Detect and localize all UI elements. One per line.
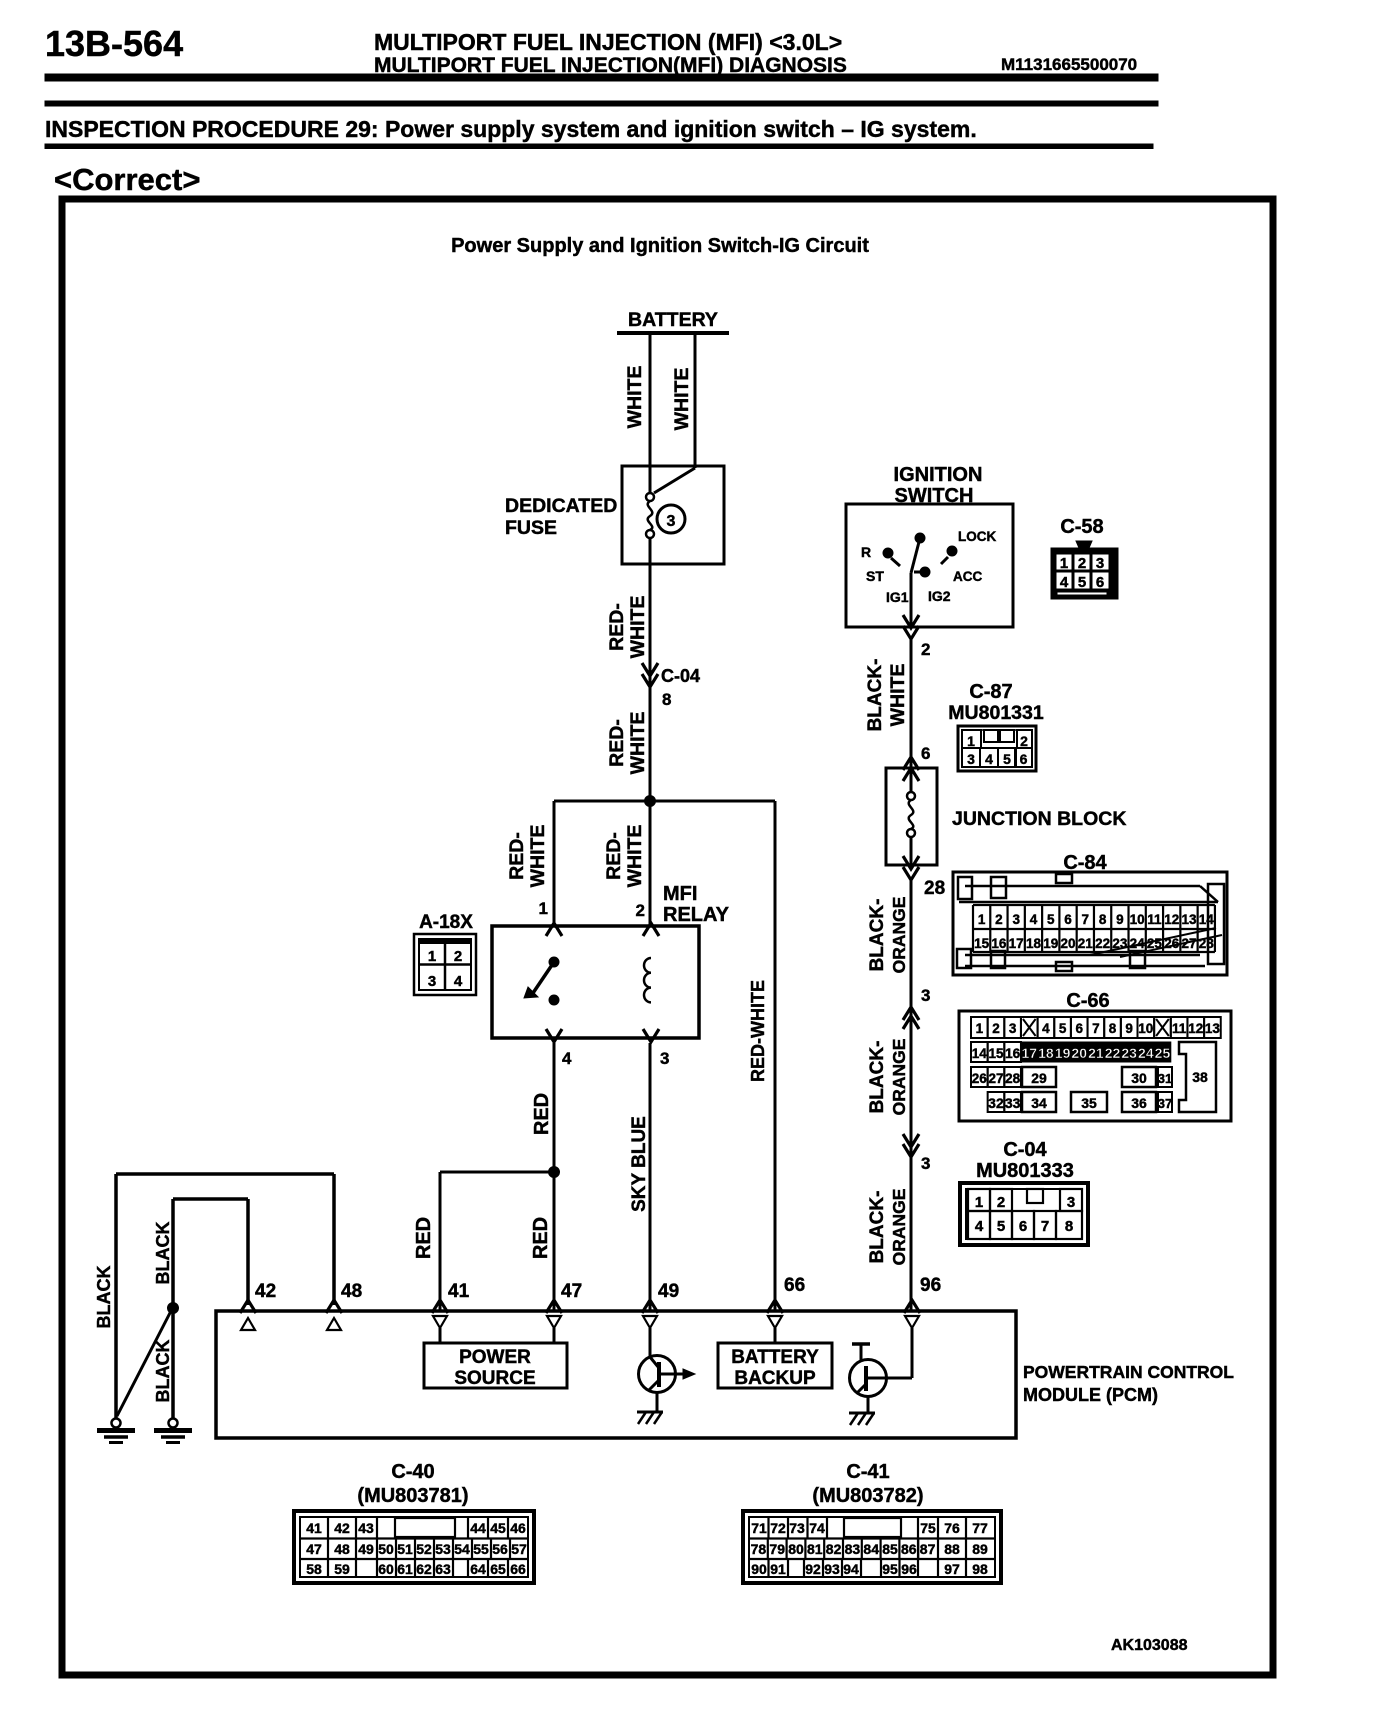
svg-text:IGNITION: IGNITION: [894, 464, 983, 486]
svg-text:11: 11: [1172, 1021, 1187, 1036]
svg-text:M1131665500070: M1131665500070: [1001, 55, 1137, 74]
svg-text:4: 4: [975, 1218, 984, 1235]
svg-text:12: 12: [1188, 1021, 1203, 1036]
svg-text:ORANGE: ORANGE: [889, 1189, 909, 1266]
svg-text:98: 98: [972, 1561, 988, 1577]
svg-text:POWERTRAIN CONTROL: POWERTRAIN CONTROL: [1023, 1362, 1234, 1382]
svg-text:ORANGE: ORANGE: [889, 1039, 909, 1116]
svg-text:INSPECTION PROCEDURE 29: Power: INSPECTION PROCEDURE 29: Power supply sy…: [45, 116, 977, 142]
svg-text:9: 9: [1125, 1021, 1133, 1036]
svg-text:7: 7: [1041, 1218, 1049, 1235]
svg-text:83: 83: [845, 1541, 861, 1557]
svg-text:BLACK: BLACK: [153, 1340, 173, 1403]
svg-text:55: 55: [473, 1541, 489, 1557]
svg-text:94: 94: [843, 1561, 859, 1577]
svg-text:BLACK: BLACK: [153, 1222, 173, 1285]
svg-text:7: 7: [1092, 1021, 1100, 1036]
svg-text:RED: RED: [530, 1217, 552, 1259]
svg-text:53: 53: [435, 1541, 451, 1557]
svg-text:5: 5: [1059, 1021, 1067, 1036]
svg-text:59: 59: [334, 1561, 350, 1577]
svg-text:42: 42: [255, 1281, 276, 1302]
svg-text:10: 10: [1130, 912, 1145, 927]
svg-text:95: 95: [882, 1561, 898, 1577]
svg-text:89: 89: [972, 1541, 988, 1557]
svg-text:63: 63: [435, 1561, 451, 1577]
svg-text:4: 4: [562, 1049, 572, 1068]
svg-text:1: 1: [975, 1194, 983, 1211]
svg-text:8: 8: [1065, 1218, 1073, 1235]
svg-text:66: 66: [784, 1275, 805, 1296]
svg-text:58: 58: [306, 1561, 322, 1577]
svg-text:13: 13: [1181, 912, 1197, 927]
svg-text:38: 38: [1192, 1069, 1208, 1085]
svg-text:37: 37: [1158, 1096, 1172, 1111]
svg-text:1: 1: [428, 948, 436, 965]
svg-text:3: 3: [921, 1154, 930, 1173]
svg-text:WHITE: WHITE: [624, 366, 646, 429]
svg-text:6: 6: [1019, 1218, 1027, 1235]
svg-text:1: 1: [539, 899, 548, 918]
svg-text:ORANGE: ORANGE: [889, 897, 909, 974]
svg-text:JUNCTION BLOCK: JUNCTION BLOCK: [952, 808, 1126, 830]
svg-text:47: 47: [306, 1541, 322, 1557]
svg-text:A-18X: A-18X: [419, 912, 473, 933]
svg-text:8: 8: [662, 690, 671, 709]
svg-text:6: 6: [1020, 751, 1028, 767]
svg-text:2: 2: [921, 640, 930, 659]
svg-text:RED-: RED-: [506, 832, 528, 880]
svg-text:28: 28: [1005, 1071, 1021, 1086]
svg-text:10: 10: [1138, 1021, 1153, 1036]
svg-text:DEDICATED: DEDICATED: [505, 495, 617, 517]
svg-text:WHITE: WHITE: [887, 664, 909, 727]
svg-text:R: R: [861, 544, 871, 560]
svg-text:56: 56: [492, 1541, 508, 1557]
svg-text:BATTERY: BATTERY: [628, 309, 718, 331]
svg-text:BACKUP: BACKUP: [734, 1368, 816, 1389]
svg-text:LOCK: LOCK: [958, 529, 996, 544]
svg-text:25: 25: [1155, 1045, 1171, 1061]
svg-text:2: 2: [992, 1021, 1000, 1036]
svg-text:18: 18: [1026, 936, 1042, 951]
svg-text:50: 50: [378, 1541, 394, 1557]
svg-text:34: 34: [1031, 1095, 1047, 1111]
svg-text:80: 80: [788, 1541, 804, 1557]
svg-text:ST: ST: [866, 568, 884, 584]
svg-text:48: 48: [334, 1541, 350, 1557]
svg-text:4: 4: [1042, 1021, 1050, 1036]
svg-text:74: 74: [809, 1520, 825, 1536]
svg-text:MU801333: MU801333: [976, 1160, 1074, 1182]
svg-text:1: 1: [1060, 555, 1068, 572]
svg-text:44: 44: [470, 1520, 486, 1536]
svg-text:BLACK: BLACK: [94, 1266, 114, 1329]
svg-text:RED: RED: [531, 1093, 553, 1135]
svg-text:11: 11: [1147, 912, 1162, 927]
svg-text:C-87: C-87: [969, 681, 1012, 703]
svg-text:3: 3: [660, 1049, 669, 1068]
svg-text:AK103088: AK103088: [1111, 1637, 1188, 1654]
svg-text:87: 87: [920, 1541, 936, 1557]
svg-text:C-58: C-58: [1060, 516, 1103, 538]
svg-text:23: 23: [1121, 1045, 1137, 1061]
svg-text:14: 14: [972, 1046, 988, 1061]
svg-text:2: 2: [1078, 555, 1086, 572]
svg-text:20: 20: [1061, 936, 1076, 951]
svg-text:24: 24: [1138, 1045, 1154, 1061]
svg-text:RELAY: RELAY: [663, 904, 730, 926]
svg-text:RED-: RED-: [603, 832, 625, 880]
svg-text:91: 91: [770, 1561, 786, 1577]
svg-text:77: 77: [972, 1520, 988, 1536]
svg-text:BLACK-: BLACK-: [867, 899, 888, 972]
svg-text:65: 65: [490, 1561, 506, 1577]
svg-text:7: 7: [1082, 912, 1090, 927]
svg-text:ACC: ACC: [953, 569, 982, 584]
svg-text:FUSE: FUSE: [505, 517, 557, 539]
svg-text:5: 5: [1003, 751, 1011, 767]
svg-text:71: 71: [751, 1520, 767, 1536]
svg-text:SOURCE: SOURCE: [454, 1368, 535, 1389]
svg-text:5: 5: [1047, 912, 1055, 927]
svg-text:C-40: C-40: [391, 1461, 434, 1483]
svg-text:3: 3: [1009, 1021, 1017, 1036]
svg-text:86: 86: [901, 1541, 917, 1557]
svg-text:MFI: MFI: [663, 883, 697, 905]
svg-text:MODULE (PCM): MODULE (PCM): [1023, 1385, 1158, 1405]
svg-text:4: 4: [1060, 574, 1069, 591]
svg-text:32: 32: [988, 1095, 1004, 1111]
svg-text:18: 18: [1038, 1045, 1054, 1061]
svg-text:C-04: C-04: [1003, 1139, 1047, 1161]
svg-text:WHITE: WHITE: [671, 368, 693, 431]
svg-text:4: 4: [1030, 912, 1038, 927]
svg-text:49: 49: [658, 1281, 679, 1302]
svg-text:22: 22: [1105, 1045, 1121, 1061]
svg-text:2: 2: [997, 1194, 1005, 1211]
svg-text:42: 42: [334, 1520, 350, 1536]
svg-text:13: 13: [1205, 1021, 1221, 1036]
svg-text:16: 16: [1005, 1046, 1021, 1061]
svg-text:(MU803781): (MU803781): [357, 1485, 468, 1507]
svg-text:SKY BLUE: SKY BLUE: [629, 1116, 650, 1212]
svg-text:3: 3: [667, 513, 676, 530]
svg-text:28: 28: [924, 878, 945, 899]
svg-text:WHITE: WHITE: [627, 712, 649, 775]
svg-text:BATTERY: BATTERY: [731, 1347, 819, 1368]
svg-text:43: 43: [358, 1520, 374, 1536]
svg-text:66: 66: [510, 1561, 526, 1577]
svg-text:33: 33: [1005, 1095, 1021, 1111]
svg-text:45: 45: [490, 1520, 506, 1536]
svg-text:64: 64: [470, 1561, 486, 1577]
svg-text:POWER: POWER: [459, 1347, 531, 1368]
svg-text:75: 75: [920, 1520, 936, 1536]
svg-text:54: 54: [454, 1541, 470, 1557]
svg-text:C-04: C-04: [661, 666, 700, 686]
svg-text:85: 85: [882, 1541, 898, 1557]
svg-text:6: 6: [1096, 574, 1104, 591]
svg-text:5: 5: [1078, 574, 1086, 591]
svg-text:97: 97: [944, 1561, 960, 1577]
svg-text:96: 96: [920, 1275, 941, 1296]
svg-text:BLACK-: BLACK-: [867, 1191, 888, 1264]
svg-text:3: 3: [1096, 555, 1104, 572]
svg-text:2: 2: [636, 901, 645, 920]
svg-text:Power Supply and Ignition Swit: Power Supply and Ignition Switch-IG Circ…: [451, 235, 869, 257]
svg-text:19: 19: [1055, 1045, 1071, 1061]
svg-text:3: 3: [921, 986, 930, 1005]
svg-text:62: 62: [416, 1561, 432, 1577]
svg-text:14: 14: [1199, 912, 1215, 927]
svg-text:2: 2: [1020, 733, 1028, 749]
svg-text:RED-: RED-: [606, 719, 628, 767]
svg-text:90: 90: [751, 1561, 767, 1577]
svg-text:52: 52: [416, 1541, 432, 1557]
svg-text:31: 31: [1158, 1071, 1172, 1086]
svg-text:19: 19: [1043, 936, 1058, 951]
svg-text:78: 78: [751, 1541, 767, 1557]
svg-text:6: 6: [1075, 1021, 1083, 1036]
svg-text:BLACK-: BLACK-: [867, 1041, 888, 1114]
svg-text:<Correct>: <Correct>: [54, 162, 200, 197]
svg-text:35: 35: [1081, 1095, 1097, 1111]
svg-text:2: 2: [995, 912, 1003, 927]
svg-text:(MU803782): (MU803782): [812, 1485, 923, 1507]
svg-text:27: 27: [988, 1071, 1003, 1086]
svg-text:73: 73: [789, 1520, 805, 1536]
svg-text:C-41: C-41: [846, 1461, 889, 1483]
svg-text:MULTIPORT FUEL INJECTION (MFI): MULTIPORT FUEL INJECTION (MFI) <3.0L>: [374, 29, 842, 55]
svg-text:26: 26: [972, 1071, 988, 1086]
svg-text:29: 29: [1031, 1070, 1047, 1086]
svg-text:46: 46: [510, 1520, 526, 1536]
svg-text:WHITE: WHITE: [624, 825, 646, 888]
svg-text:30: 30: [1131, 1070, 1147, 1086]
svg-text:WHITE: WHITE: [527, 825, 549, 888]
svg-text:84: 84: [863, 1541, 879, 1557]
svg-text:9: 9: [1116, 912, 1124, 927]
svg-text:81: 81: [807, 1541, 823, 1557]
svg-text:21: 21: [1078, 936, 1094, 951]
svg-text:4: 4: [985, 751, 993, 767]
svg-text:22: 22: [1095, 936, 1110, 951]
svg-text:C-66: C-66: [1066, 990, 1109, 1012]
svg-text:6: 6: [1064, 912, 1072, 927]
svg-text:5: 5: [997, 1218, 1005, 1235]
svg-text:20: 20: [1071, 1045, 1087, 1061]
svg-text:79: 79: [769, 1541, 785, 1557]
svg-text:12: 12: [1164, 912, 1179, 927]
svg-text:61: 61: [397, 1561, 413, 1577]
svg-text:1: 1: [967, 733, 975, 749]
svg-text:93: 93: [824, 1561, 840, 1577]
svg-text:16: 16: [991, 936, 1007, 951]
svg-text:4: 4: [454, 973, 463, 990]
svg-text:15: 15: [988, 1046, 1004, 1061]
svg-text:36: 36: [1131, 1095, 1147, 1111]
svg-text:1: 1: [978, 912, 986, 927]
svg-text:3: 3: [1067, 1194, 1075, 1211]
svg-text:RED-WHITE: RED-WHITE: [748, 980, 768, 1082]
svg-text:96: 96: [901, 1561, 917, 1577]
svg-text:RED-: RED-: [606, 603, 628, 651]
svg-text:WHITE: WHITE: [627, 596, 649, 659]
svg-text:MU801331: MU801331: [948, 702, 1044, 724]
svg-text:8: 8: [1109, 1021, 1117, 1036]
svg-text:1: 1: [976, 1021, 984, 1036]
svg-text:48: 48: [341, 1281, 362, 1302]
svg-text:60: 60: [378, 1561, 394, 1577]
svg-text:51: 51: [397, 1541, 413, 1557]
svg-text:2: 2: [454, 948, 462, 965]
svg-text:92: 92: [805, 1561, 821, 1577]
svg-text:3: 3: [967, 751, 975, 767]
svg-text:57: 57: [511, 1541, 527, 1557]
svg-text:17: 17: [1009, 936, 1024, 951]
svg-text:15: 15: [974, 936, 990, 951]
svg-text:47: 47: [561, 1281, 582, 1302]
svg-text:IG1: IG1: [886, 589, 909, 605]
svg-text:82: 82: [826, 1541, 842, 1557]
svg-text:21: 21: [1088, 1045, 1104, 1061]
svg-text:41: 41: [306, 1520, 322, 1536]
svg-text:BLACK-: BLACK-: [865, 659, 886, 732]
svg-text:49: 49: [358, 1541, 374, 1557]
svg-text:76: 76: [944, 1520, 960, 1536]
svg-text:72: 72: [770, 1520, 786, 1536]
svg-text:6: 6: [921, 744, 930, 763]
svg-text:41: 41: [448, 1281, 470, 1302]
svg-text:88: 88: [944, 1541, 960, 1557]
svg-text:RED: RED: [413, 1217, 435, 1259]
svg-text:17: 17: [1021, 1045, 1037, 1061]
svg-text:3: 3: [428, 973, 436, 990]
svg-text:13B-564: 13B-564: [45, 23, 183, 64]
svg-text:IG2: IG2: [928, 588, 951, 604]
svg-text:8: 8: [1099, 912, 1107, 927]
svg-text:3: 3: [1012, 912, 1020, 927]
